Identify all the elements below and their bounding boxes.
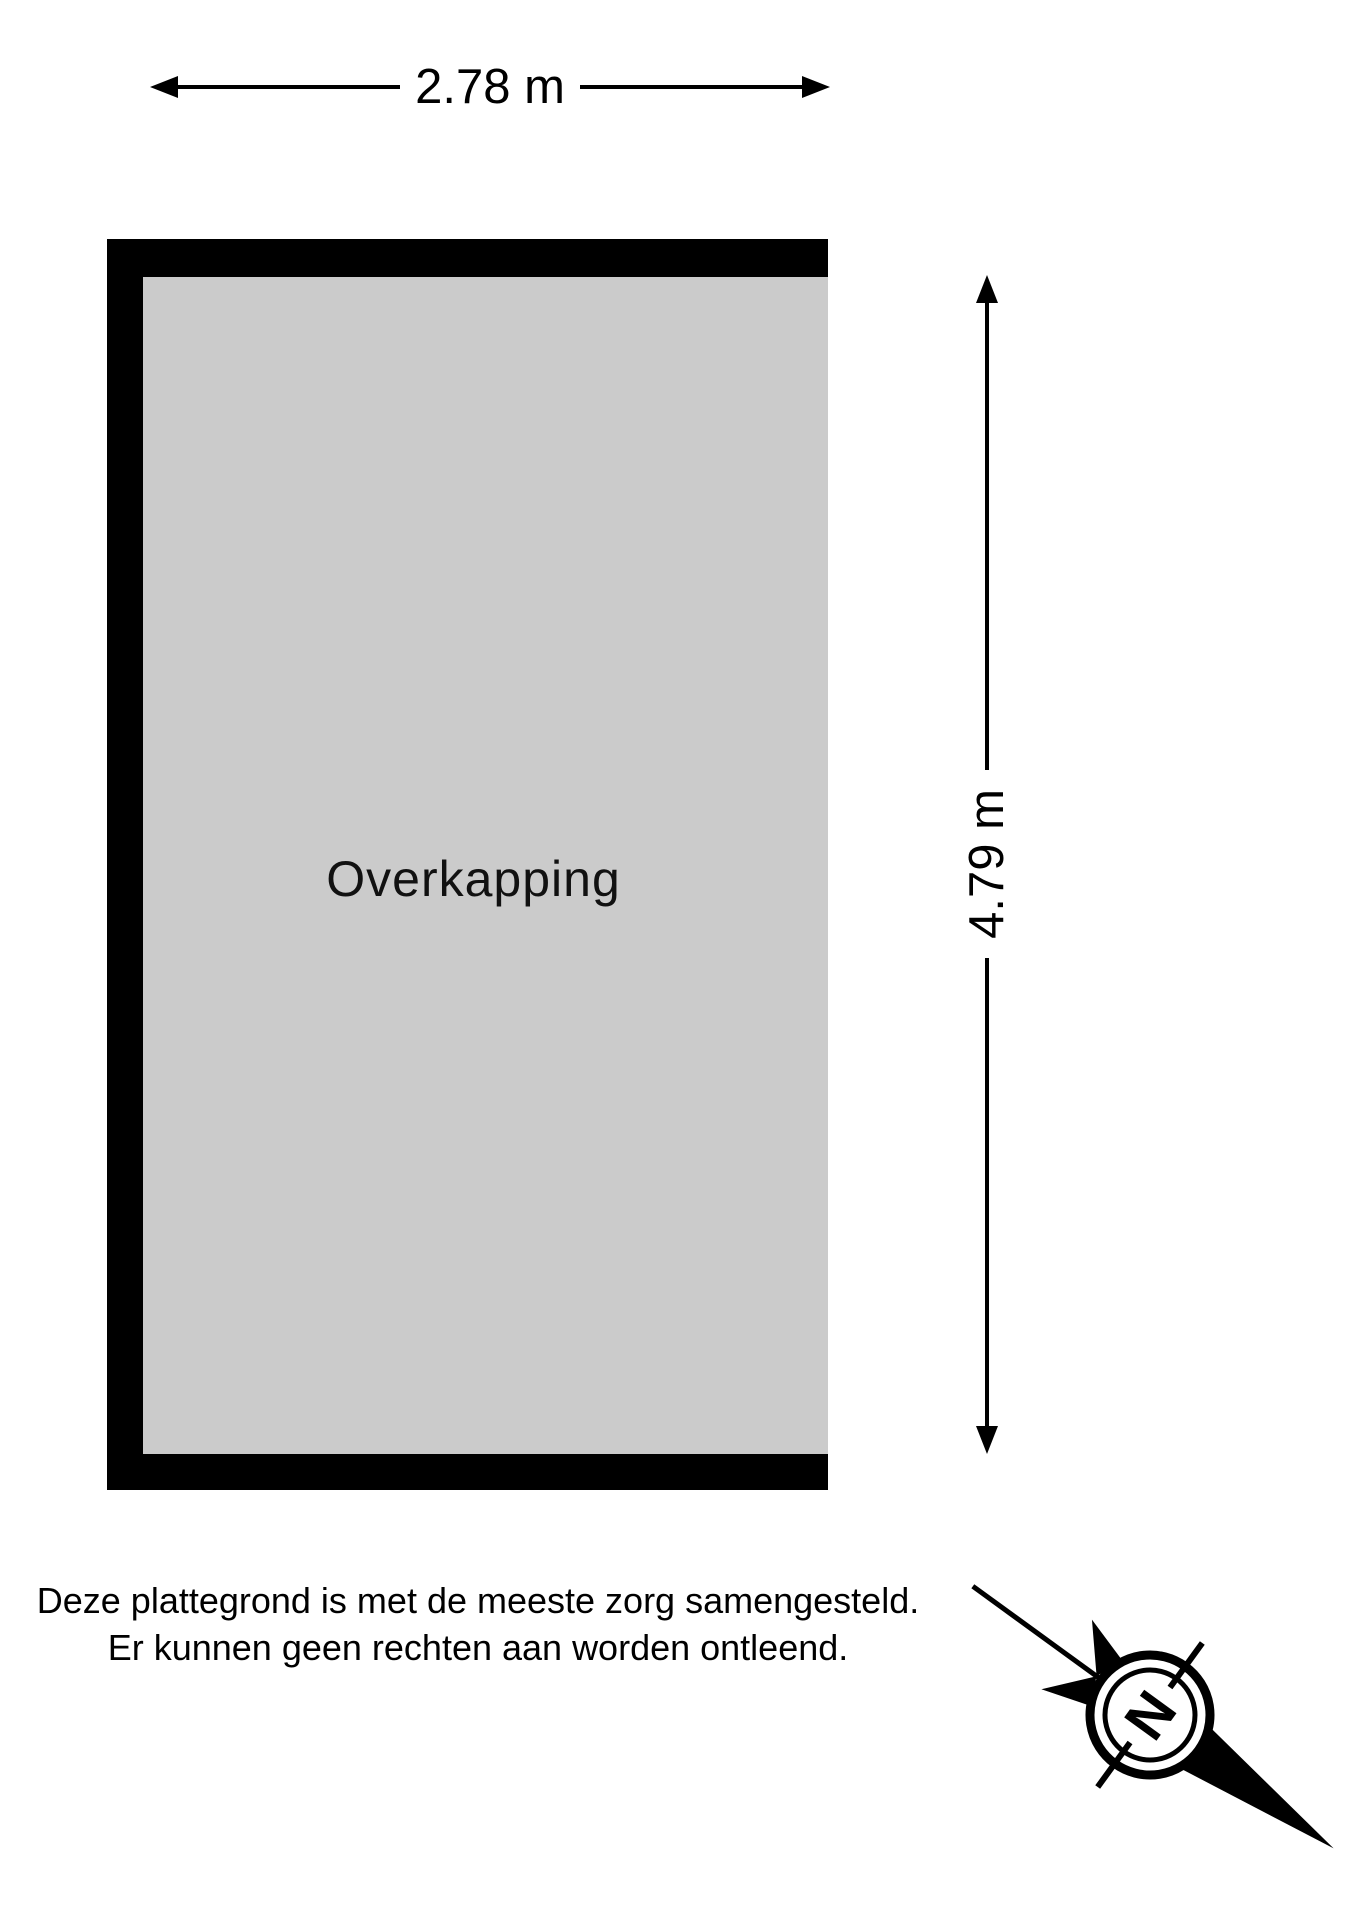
room-label: Overkapping	[326, 850, 621, 908]
dimension-width-label: 2.78 m	[415, 60, 565, 114]
arrowhead-up-icon	[976, 275, 998, 303]
room-floor: Overkapping	[143, 277, 828, 1454]
room-walls: Overkapping	[107, 239, 828, 1490]
dimension-depth: 4.79 m	[960, 275, 1014, 1454]
disclaimer: Deze plattegrond is met de meeste zorg s…	[0, 1577, 956, 1671]
disclaimer-line2: Er kunnen geen rechten aan worden ontlee…	[0, 1624, 956, 1671]
floorplan-canvas: 2.78 m Overkapping 4.79 m Deze plattegro…	[0, 0, 1358, 1920]
disclaimer-line1: Deze plattegrond is met de meeste zorg s…	[0, 1577, 956, 1624]
dimension-depth-label: 4.79 m	[960, 789, 1014, 939]
arrowhead-down-icon	[976, 1426, 998, 1454]
compass-rose-icon: N	[940, 1555, 1358, 1875]
arrowhead-right-icon	[802, 76, 830, 98]
arrowhead-left-icon	[150, 76, 178, 98]
dimension-width: 2.78 m	[150, 57, 830, 117]
